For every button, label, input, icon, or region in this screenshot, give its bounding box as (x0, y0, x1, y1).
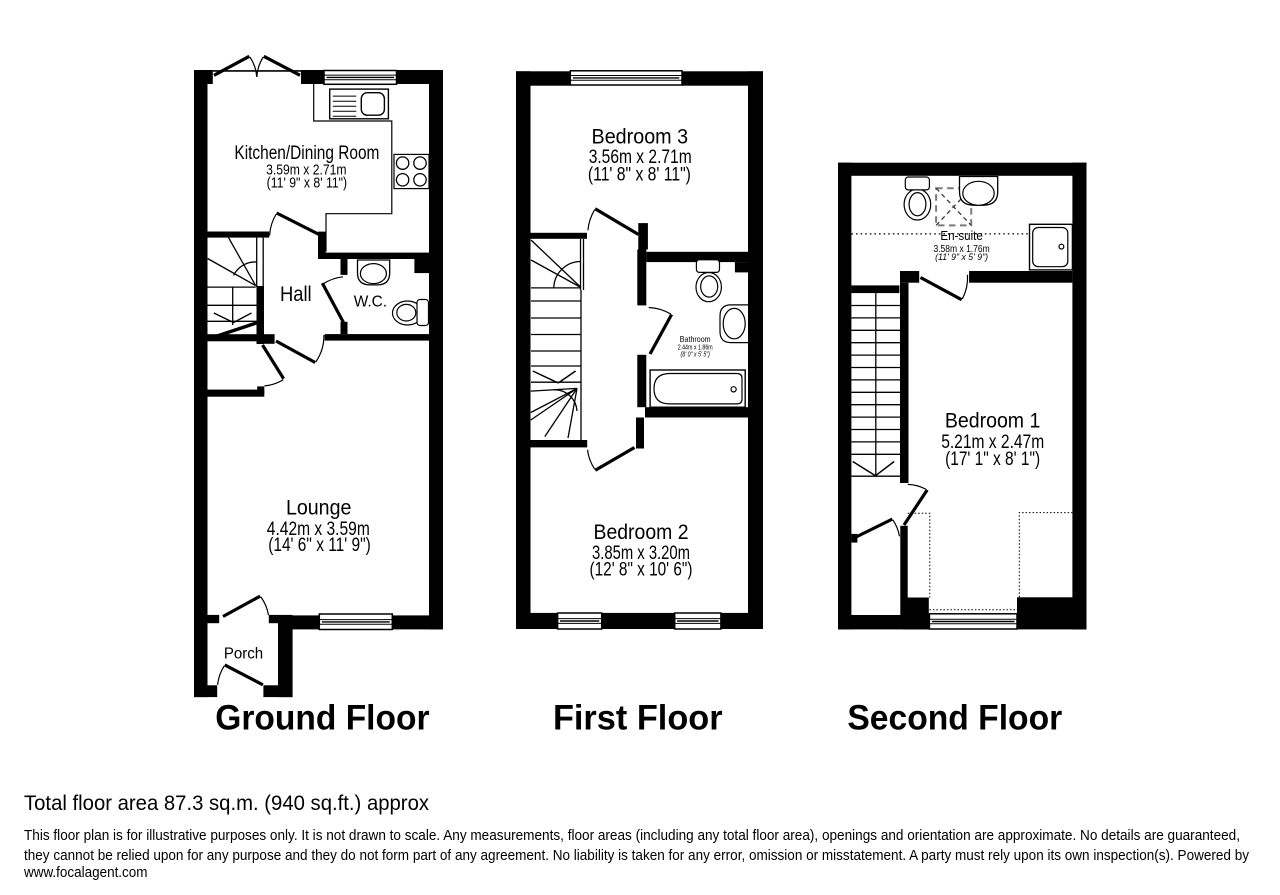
svg-text:Bedroom 1: Bedroom 1 (945, 409, 1041, 433)
svg-text:(17' 1" x 8' 1"): (17' 1" x 8' 1") (945, 449, 1040, 470)
svg-text:(11' 9" x 8' 11"): (11' 9" x 8' 11") (267, 175, 348, 191)
svg-text:(12' 8" x 10' 6"): (12' 8" x 10' 6") (590, 560, 693, 581)
svg-text:(11' 9" x 5' 9"): (11' 9" x 5' 9") (935, 252, 988, 263)
svg-text:Lounge: Lounge (286, 497, 352, 520)
svg-text:First Floor: First Floor (553, 699, 723, 738)
svg-text:W.C.: W.C. (354, 294, 387, 311)
svg-text:This floor plan is for illustr: This floor plan is for illustrative purp… (24, 827, 1240, 844)
svg-text:Bedroom 2: Bedroom 2 (594, 520, 689, 544)
svg-text:Bedroom 3: Bedroom 3 (592, 124, 689, 148)
svg-text:Hall: Hall (280, 283, 312, 306)
svg-text:Second Floor: Second Floor (847, 699, 1062, 738)
svg-text:Total floor area 87.3 sq.m. (9: Total floor area 87.3 sq.m. (940 sq.ft.)… (24, 792, 429, 815)
svg-text:www.focalagent.com: www.focalagent.com (23, 864, 147, 881)
svg-text:Ground Floor: Ground Floor (215, 699, 430, 738)
svg-text:(8' 0" x 5' 5"): (8' 0" x 5' 5") (681, 351, 710, 358)
svg-text:Kitchen/Dining Room: Kitchen/Dining Room (234, 142, 379, 164)
svg-text:(14' 6" x 11' 9"): (14' 6" x 11' 9") (268, 535, 371, 556)
svg-text:(11' 8" x 8' 11"): (11' 8" x 8' 11") (588, 165, 691, 186)
svg-text:En-suite: En-suite (940, 229, 982, 243)
svg-text:Porch: Porch (224, 646, 263, 663)
svg-text:they cannot be relied upon for: they cannot be relied upon for any purpo… (24, 847, 1249, 864)
svg-text:2.44m x 1.86m: 2.44m x 1.86m (678, 343, 713, 352)
